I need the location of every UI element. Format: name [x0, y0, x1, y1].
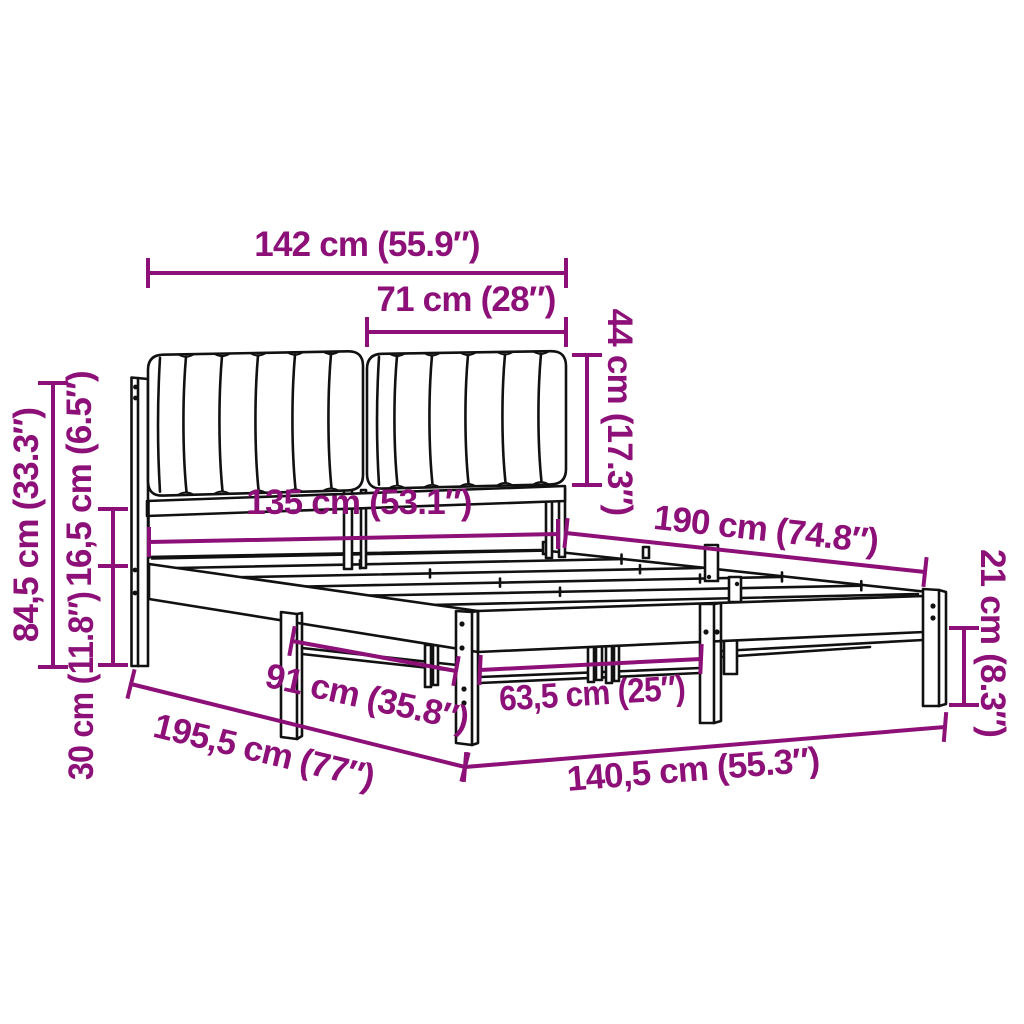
svg-text:71 cm (28″): 71 cm (28″) [376, 280, 555, 319]
svg-text:44 cm (17.3″): 44 cm (17.3″) [600, 309, 639, 516]
svg-text:135 cm (53.1″): 135 cm (53.1″) [246, 483, 471, 522]
svg-text:21 cm (8.3″): 21 cm (8.3″) [973, 549, 1012, 737]
svg-text:16,5 cm (6.5″): 16,5 cm (6.5″) [60, 371, 99, 587]
svg-text:142 cm (55.9″): 142 cm (55.9″) [254, 225, 479, 264]
svg-text:84,5 cm (33.3″): 84,5 cm (33.3″) [7, 408, 46, 642]
svg-text:190 cm (74.8″): 190 cm (74.8″) [652, 498, 880, 561]
svg-text:30 cm (11.8″): 30 cm (11.8″) [63, 592, 102, 780]
svg-text:195,5 cm (77″): 195,5 cm (77″) [150, 706, 378, 797]
